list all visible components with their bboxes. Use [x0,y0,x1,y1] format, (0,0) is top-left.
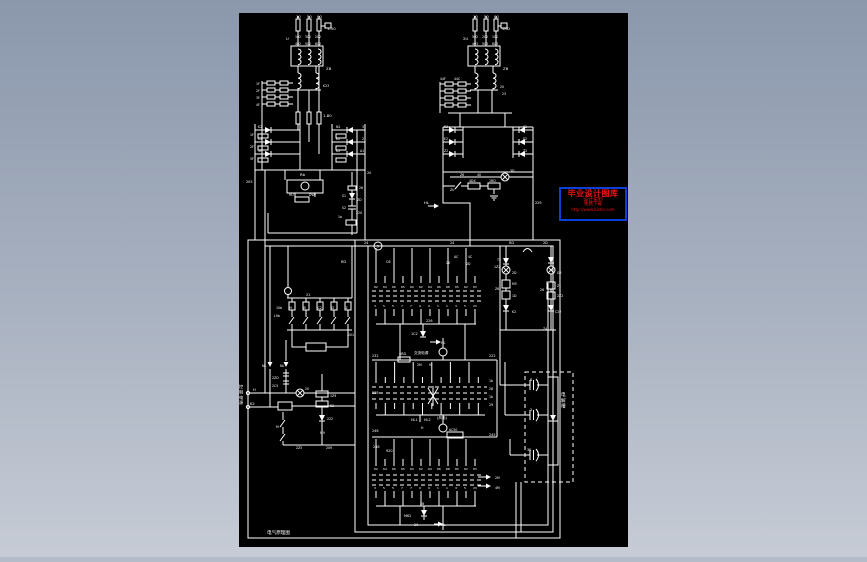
svg-text:2D: 2D [543,241,548,245]
svg-text:2B: 2B [420,502,424,506]
svg-text:60: 60 [410,285,414,289]
svg-text:ZB: ZB [326,66,332,71]
svg-text:电: 电 [561,391,566,398]
svg-text:23: 23 [502,92,506,96]
svg-text:AC50: AC50 [449,428,457,432]
svg-text:4F: 4F [256,103,260,107]
svg-text:1: 1 [437,486,439,490]
svg-text:K2: K2 [258,125,262,129]
svg-text:10: 10 [473,14,478,19]
svg-text:64: 64 [383,285,387,289]
svg-text:K2: K2 [258,137,262,141]
svg-text:K2: K2 [330,404,334,408]
svg-text:1Z9: 1Z9 [330,394,336,398]
svg-text:502: 502 [305,42,311,46]
svg-text:5: 5 [383,304,385,308]
svg-text:202: 202 [482,35,488,39]
svg-text:66: 66 [392,285,396,289]
svg-text:26: 26 [359,186,363,190]
svg-text:2Z5: 2Z5 [296,446,302,450]
svg-text:3F: 3F [256,96,260,100]
svg-text:28: 28 [489,387,493,391]
svg-text:222: 222 [489,354,495,358]
svg-text:HL: HL [441,523,446,527]
svg-text:24: 24 [364,241,368,245]
svg-text:DW: DW [309,193,315,197]
svg-text:H: H [421,426,424,430]
svg-text:K2: K2 [523,125,527,129]
svg-text:62: 62 [374,467,378,471]
svg-text:9: 9 [428,304,430,308]
svg-text:NL: NL [262,364,267,368]
svg-text:220: 220 [356,211,362,215]
svg-text:23: 23 [473,304,477,308]
svg-text:66: 66 [437,285,441,289]
svg-text:M62: M62 [404,514,411,518]
terminal-strips: 6236456656576076296496616816536256323623… [372,248,497,530]
svg-text:245: 245 [489,433,495,437]
svg-text:(风电): (风电) [437,415,448,420]
watermark-url: http://www.bishe.com [563,208,624,212]
wiring-frame [248,130,560,538]
svg-text:50: 50 [484,14,489,19]
svg-text:9: 9 [419,304,421,308]
svg-text:102: 102 [295,35,301,39]
schematic-canvas: HBC2DZ [239,13,628,547]
svg-text:N2: N2 [336,125,340,129]
svg-text:20: 20 [367,171,371,175]
svg-text:63: 63 [473,285,477,289]
svg-text:3: 3 [362,125,364,129]
svg-text:5: 5 [464,304,466,308]
svg-text:20: 20 [500,85,504,89]
svg-text:Rb: Rb [300,172,306,177]
svg-text:Z2: Z2 [444,149,448,153]
svg-text:1-50: 1-50 [327,26,336,31]
svg-text:ZB: ZB [503,66,509,71]
svg-text:232: 232 [372,354,378,358]
svg-text:238: 238 [372,391,378,395]
svg-text:G2: G2 [557,271,562,275]
svg-text:65: 65 [401,467,405,471]
svg-text:Z6: Z6 [495,287,499,291]
svg-text:B: B [530,378,533,382]
svg-text:U: U [286,36,289,41]
svg-text:9: 9 [428,486,430,490]
svg-text:62: 62 [374,285,378,289]
svg-text:603: 603 [492,42,498,46]
svg-text:K2: K2 [250,402,255,406]
rectifier-bridge-right [443,127,533,172]
svg-text:205: 205 [246,180,252,184]
svg-text:1-80: 1-80 [323,113,332,118]
svg-text:1: 1 [446,304,448,308]
svg-text:C22: C22 [555,310,561,314]
svg-text:Z2: Z2 [523,149,527,153]
rectifier-bridge-left [255,124,365,172]
svg-text:E2: E2 [523,137,527,141]
svg-text:Z6: Z6 [460,173,464,177]
svg-text:4F: 4F [258,149,262,153]
svg-text:3: 3 [455,486,457,490]
svg-text:226: 226 [426,319,432,323]
svg-text:248: 248 [373,445,379,449]
svg-text:20: 20 [305,387,309,391]
svg-text:1b: 1b [489,379,493,383]
svg-text:66: 66 [392,467,396,471]
svg-text:29: 29 [489,403,493,407]
svg-text:HU: HU [289,193,294,197]
svg-text:9: 9 [419,486,421,490]
svg-text:65: 65 [401,285,405,289]
svg-text:7: 7 [401,304,403,308]
svg-text:3D: 3D [510,169,515,173]
svg-text:302: 302 [305,35,311,39]
svg-text:40: 40 [477,173,481,177]
svg-text:65: 65 [455,285,459,289]
svg-text:20: 20 [414,523,418,527]
svg-text:402: 402 [295,42,301,46]
svg-text:62: 62 [419,285,423,289]
svg-text:403: 403 [472,42,478,46]
svg-text:10: 10 [296,14,301,19]
svg-text:M9: M9 [320,431,325,435]
svg-text:2M: 2M [417,363,422,367]
svg-text:交流电源: 交流电源 [414,350,429,355]
svg-text:HL: HL [441,341,446,345]
watermark: 毕业设计图库 设计资料 免费下载 http://www.bishe.com [559,187,627,221]
svg-text:S2: S2 [342,206,346,210]
svg-text:1b: 1b [489,395,493,399]
svg-text:电: 电 [239,394,244,400]
svg-text:B: B [304,306,306,310]
svg-text:10b: 10b [276,306,282,310]
svg-text:5F: 5F [250,157,254,161]
window-edge [0,557,867,562]
svg-text:ZU: ZU [450,188,455,192]
svg-text:65: 65 [455,467,459,471]
svg-text:920: 920 [386,449,392,453]
svg-text:64: 64 [383,467,387,471]
svg-text:槽: 槽 [561,403,566,410]
meter-circuit-left [285,170,356,235]
svg-text:64: 64 [428,467,432,471]
svg-text:1a: 1a [338,215,342,219]
svg-text:202: 202 [315,35,321,39]
svg-text:2U: 2U [463,36,468,41]
svg-text:24: 24 [450,241,454,245]
svg-text:1C2: 1C2 [411,332,418,336]
control-input [246,246,355,445]
svg-text:222: 222 [327,417,333,421]
svg-text:Z1: Z1 [557,284,561,288]
svg-text:4DX: 4DX [469,179,476,183]
svg-text:S1: S1 [342,194,346,198]
svg-text:21: 21 [306,293,310,297]
svg-text:1D: 1D [512,294,517,298]
svg-text:4RD: 4RD [399,352,407,356]
svg-text:66: 66 [437,467,441,471]
svg-text:AC: AC [454,255,459,259]
svg-text:2Z2: 2Z2 [557,294,563,298]
svg-text:K2: K2 [336,137,340,141]
svg-text:A1: A1 [360,149,364,153]
svg-text:RD: RD [509,241,514,245]
svg-text:50: 50 [307,14,312,19]
svg-text:H: H [253,388,256,392]
svg-text:00: 00 [317,14,322,19]
svg-text:2M: 2M [495,476,500,480]
svg-text:1Z2: 1Z2 [494,265,500,269]
svg-text:M: M [276,425,279,429]
svg-text:电气原理图: 电气原理图 [267,529,290,536]
svg-text:4M: 4M [495,486,500,490]
svg-text:7: 7 [401,486,403,490]
indicator-lamp-circuit [428,172,533,246]
svg-text:3: 3 [377,245,379,249]
svg-text:4RD: 4RD [502,26,510,31]
svg-text:C2: C2 [318,306,322,310]
svg-text:D: D [332,306,335,310]
svg-text:44F: 44F [440,77,446,81]
svg-text:502: 502 [472,35,478,39]
svg-text:K2: K2 [336,149,340,153]
svg-text:60: 60 [410,467,414,471]
svg-text:229: 229 [535,201,541,205]
svg-text:K2: K2 [444,125,448,129]
svg-text:5: 5 [392,304,394,308]
svg-text:E2: E2 [444,137,448,141]
svg-text:62: 62 [464,285,468,289]
transformer-right [448,16,512,127]
svg-text:2: 2 [362,137,364,141]
svg-text:1RD: 1RD [489,179,496,183]
svg-text:62: 62 [419,467,423,471]
svg-text:64: 64 [428,285,432,289]
svg-text:HL2: HL2 [424,418,431,422]
svg-text:68: 68 [446,285,450,289]
svg-text:26: 26 [540,288,544,292]
svg-text:2F: 2F [250,145,254,149]
svg-text:5: 5 [392,486,394,490]
svg-text:3: 3 [374,304,376,308]
svg-text:L9b: L9b [274,314,280,318]
svg-text:503: 503 [482,42,488,46]
svg-text:M5: M5 [512,282,517,286]
svg-text:Z: Z [346,306,349,310]
svg-text:1: 1 [437,304,439,308]
svg-text:209: 209 [326,446,332,450]
svg-text:23: 23 [473,486,477,490]
svg-text:4C: 4C [468,255,473,259]
svg-text:2D: 2D [512,271,517,275]
relay-ladder: HBC2DZ [285,258,353,351]
svg-text:102: 102 [492,35,498,39]
svg-text:RD: RD [341,260,346,264]
svg-text:NL: NL [280,364,285,368]
svg-text:K2: K2 [512,310,516,314]
svg-text:7: 7 [410,304,412,308]
svg-text:HL1: HL1 [411,418,418,422]
svg-text:HL: HL [424,200,430,205]
svg-text:1: 1 [446,486,448,490]
resistor-banks [262,81,471,170]
svg-text:2C5: 2C5 [272,384,278,388]
svg-text:201: 201 [348,333,354,337]
svg-text:K23: K23 [323,84,329,88]
svg-text:C6: C6 [386,260,391,264]
svg-text:1F: 1F [256,82,260,86]
svg-text:5: 5 [383,486,385,490]
svg-text:20: 20 [446,261,450,265]
svg-text:7: 7 [410,486,412,490]
svg-text:1F: 1F [250,133,254,137]
svg-text:2ZD: 2ZD [272,376,279,380]
svg-text:H: H [290,306,293,310]
svg-text:3: 3 [455,304,457,308]
svg-text:解: 解 [561,397,566,404]
svg-text:2D: 2D [466,262,471,266]
svg-text:62: 62 [464,467,468,471]
svg-text:ZD: ZD [357,198,362,202]
svg-text:246: 246 [372,429,378,433]
svg-text:63: 63 [473,467,477,471]
svg-text:44C: 44C [454,77,461,81]
svg-text:00: 00 [494,14,499,19]
svg-text:T2: T2 [496,258,501,262]
svg-text:68: 68 [446,467,450,471]
svg-text:Z4: Z4 [543,327,547,331]
svg-text:3: 3 [374,486,376,490]
svg-text:5: 5 [464,486,466,490]
svg-text:3K: 3K [527,448,532,452]
svg-text:3: 3 [530,408,532,412]
svg-text:602: 602 [315,42,321,46]
svg-text:2F: 2F [256,89,260,93]
svg-text:源: 源 [239,399,244,406]
